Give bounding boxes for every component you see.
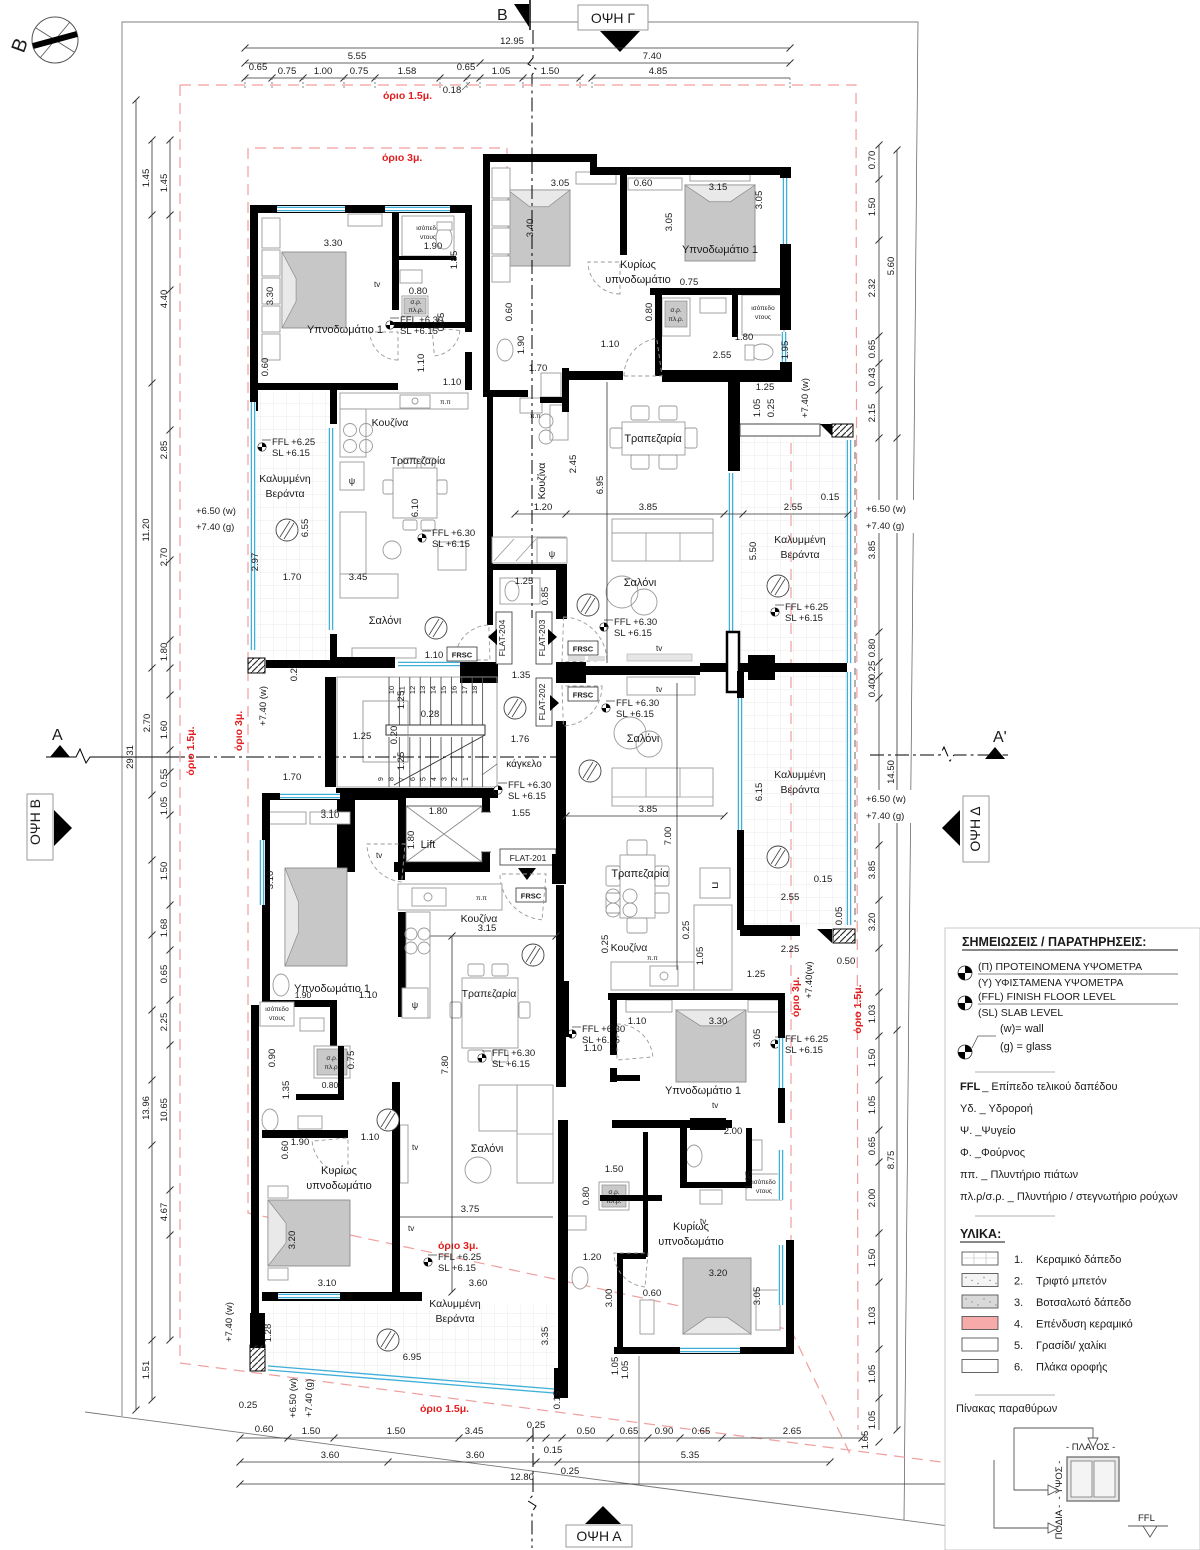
svg-text:Πλάκα οροφής: Πλάκα οροφής [1036,1362,1107,1374]
svg-text:1.50: 1.50 [867,1249,878,1268]
svg-text:5.55: 5.55 [348,51,367,62]
svg-text:13.96: 13.96 [141,1096,152,1120]
svg-text:1.68: 1.68 [159,919,170,938]
svg-text:12.95: 12.95 [500,36,524,47]
svg-text:1.28: 1.28 [263,1324,274,1343]
svg-text:ΟΨΗ Γ: ΟΨΗ Γ [591,10,636,26]
svg-text:15: 15 [439,686,448,694]
svg-text:7.40: 7.40 [643,51,662,62]
svg-text:0.80: 0.80 [581,1187,592,1206]
svg-text:1.25: 1.25 [353,731,372,742]
svg-text:Τραπεζαρία: Τραπεζαρία [462,988,517,1000]
svg-text:18: 18 [470,686,479,694]
svg-text:FFL _ Επίπεδο τελικού δαπέδου: FFL _ Επίπεδο τελικού δαπέδου [960,1081,1118,1093]
svg-text:FFL: FFL [1138,1513,1155,1524]
svg-text:3.45: 3.45 [349,572,368,583]
svg-text:Lift: Lift [421,839,436,851]
svg-text:5.35: 5.35 [681,1450,700,1461]
svg-text:1.50: 1.50 [387,1426,406,1437]
svg-text:4.40: 4.40 [159,290,170,309]
svg-text:1.10: 1.10 [584,1043,603,1054]
svg-text:0.60: 0.60 [260,358,271,377]
svg-text:FFL +6.25: FFL +6.25 [785,602,828,613]
svg-text:12.80: 12.80 [510,1472,534,1483]
svg-text:2.55: 2.55 [713,350,732,361]
svg-text:0.65: 0.65 [867,1137,878,1156]
svg-text:πλ.ρ.: πλ.ρ. [324,1064,339,1071]
svg-text:+6.50 (w): +6.50 (w) [288,1378,299,1418]
svg-text:ΠΟΔΙΑ -: ΠΟΔΙΑ - [1054,1505,1065,1540]
svg-text:0.25: 0.25 [766,399,777,418]
svg-text:ΣΗΜΕΙΩΣΕΙΣ / ΠΑΡΑΤΗΡΗΣΕΙΣ:: ΣΗΜΕΙΩΣΕΙΣ / ΠΑΡΑΤΗΡΗΣΕΙΣ: [962,935,1146,949]
svg-text:ντους: ντους [269,1015,285,1022]
svg-text:0.65: 0.65 [159,965,170,984]
svg-text:1.10: 1.10 [361,1132,380,1143]
svg-text:ισόπεδο: ισόπεδο [752,1178,776,1186]
svg-text:0.25: 0.25 [239,1400,258,1411]
svg-text:1.80: 1.80 [159,643,170,662]
svg-text:1.50: 1.50 [302,1426,321,1437]
svg-text:0.65: 0.65 [457,62,476,73]
svg-text:0.65: 0.65 [249,62,268,73]
svg-text:2.00: 2.00 [724,1126,743,1137]
svg-text:0.65: 0.65 [620,1426,639,1437]
svg-text:SL +6.15: SL +6.15 [432,539,470,550]
svg-text:6.95: 6.95 [595,476,606,495]
svg-text:1.80: 1.80 [429,806,448,817]
svg-text:5.50: 5.50 [748,542,759,561]
svg-text:2.45: 2.45 [568,455,579,474]
svg-text:14: 14 [429,686,438,694]
svg-text:ψ: ψ [549,549,555,559]
svg-text:17: 17 [460,686,469,694]
svg-text:0.25: 0.25 [600,935,611,954]
svg-text:(w)= wall: (w)= wall [1000,1023,1044,1035]
svg-text:1.00: 1.00 [314,66,333,77]
svg-text:1.10: 1.10 [601,339,620,350]
svg-text:0.70: 0.70 [867,151,878,170]
svg-text:πλ.ρ.: πλ.ρ. [668,316,683,323]
svg-text:1.90: 1.90 [295,990,312,1000]
svg-text:0.05: 0.05 [834,907,845,926]
svg-text:0.75: 0.75 [350,66,369,77]
svg-text:ντους: ντους [420,234,436,241]
svg-text:SL +6.15: SL +6.15 [785,1045,823,1056]
svg-text:12: 12 [408,686,417,694]
svg-text:tv: tv [376,851,382,860]
svg-text:2.55: 2.55 [781,892,800,903]
svg-text:Κυρίως: Κυρίως [321,1165,357,1177]
svg-text:1.05: 1.05 [695,947,706,966]
svg-text:0.75: 0.75 [278,66,297,77]
svg-text:5: 5 [420,777,427,781]
svg-text:1.20: 1.20 [583,1252,602,1263]
svg-text:1.60: 1.60 [159,721,170,740]
svg-text:1.35: 1.35 [512,670,531,681]
svg-text:όριο 1.5μ.: όριο 1.5μ. [383,90,432,102]
svg-text:Βεράντα: Βεράντα [780,784,819,796]
svg-text:1.05: 1.05 [492,66,511,77]
svg-text:Βεράντα: Βεράντα [435,1313,474,1325]
svg-text:1.70: 1.70 [283,772,302,783]
svg-text:2.15: 2.15 [867,404,878,423]
svg-text:0.90: 0.90 [655,1426,674,1437]
svg-text:4.: 4. [1014,1319,1023,1331]
svg-text:Κυρίως: Κυρίως [673,1221,709,1233]
svg-text:2.: 2. [1014,1276,1023,1288]
svg-text:3.20: 3.20 [867,913,878,932]
svg-text:(Π) ΠΡΟΤΕΙΝΟΜΕΝΑ ΥΨΟΜΕΤΡΑ: (Π) ΠΡΟΤΕΙΝΟΜΕΝΑ ΥΨΟΜΕΤΡΑ [978,961,1142,973]
svg-text:κάγκελο: κάγκελο [506,758,542,770]
svg-text:FFL +6.30: FFL +6.30 [432,528,475,539]
svg-text:2.32: 2.32 [867,279,878,298]
svg-text:SL +6.15: SL +6.15 [438,1263,476,1274]
svg-text:0.40: 0.40 [867,679,878,698]
svg-text:FLAT-203: FLAT-203 [537,619,547,656]
svg-text:3.00: 3.00 [604,1289,615,1308]
svg-text:πλ.ρ.: πλ.ρ. [408,307,423,314]
svg-text:3.15: 3.15 [478,923,497,934]
svg-text:ψ: ψ [412,1000,418,1010]
svg-text:7.00: 7.00 [663,827,674,846]
svg-text:ΟΨΗ Δ: ΟΨΗ Δ [967,806,983,851]
svg-text:0.60: 0.60 [255,1424,274,1435]
svg-text:0.18: 0.18 [443,85,462,96]
svg-text:6: 6 [410,777,417,781]
svg-text:0.28: 0.28 [421,709,440,720]
svg-text:0.20: 0.20 [389,726,400,745]
svg-text:1.20: 1.20 [534,502,553,513]
svg-text:1.45: 1.45 [159,174,170,193]
svg-text:6.95: 6.95 [403,1352,422,1363]
svg-text:16: 16 [449,686,458,694]
svg-text:FFL +6.30: FFL +6.30 [582,1024,625,1035]
svg-text:tv: tv [656,685,662,694]
svg-text:3.10: 3.10 [321,810,340,821]
svg-text:3.60: 3.60 [466,1450,485,1461]
svg-text:π.π: π.π [476,895,487,902]
svg-text:Κουζίνα: Κουζίνα [536,463,548,500]
svg-text:ντους: ντους [755,314,771,321]
svg-text:όριο 1.5μ.: όριο 1.5μ. [185,726,197,775]
svg-text:+7.40 (g): +7.40 (g) [866,521,904,532]
svg-text:σ.ρ.: σ.ρ. [410,299,422,306]
svg-text:1.50: 1.50 [541,66,560,77]
svg-text:3.30: 3.30 [709,1016,728,1027]
svg-text:3.40: 3.40 [525,219,536,238]
svg-text:0.60: 0.60 [634,178,653,189]
svg-text:0.60: 0.60 [643,1288,662,1299]
svg-text:SL +6.15: SL +6.15 [614,628,652,639]
svg-text:tv: tv [656,644,662,653]
svg-text:FFL +6.30: FFL +6.30 [616,698,659,709]
svg-text:3.05: 3.05 [551,178,570,189]
svg-text:Σαλόνι: Σαλόνι [369,615,402,627]
svg-text:(Υ) ΥΦΙΣΤΑΜΕΝΑ ΥΨΟΜΕΤΡΑ: (Υ) ΥΦΙΣΤΑΜΕΝΑ ΥΨΟΜΕΤΡΑ [978,977,1123,989]
svg-text:1.50: 1.50 [867,1049,878,1068]
svg-text:Κεραμικό δάπεδο: Κεραμικό δάπεδο [1036,1254,1121,1266]
svg-text:1.10: 1.10 [425,650,444,661]
svg-text:(SL) SLAB LEVEL: (SL) SLAB LEVEL [978,1007,1063,1019]
svg-text:Ψ. _Ψυγείο: Ψ. _Ψυγείο [960,1125,1016,1137]
svg-text:6.10: 6.10 [410,499,421,518]
svg-text:1.25: 1.25 [396,752,407,771]
svg-text:SL +6.15: SL +6.15 [272,448,310,459]
svg-text:3.60: 3.60 [469,1278,488,1289]
svg-text:3.85: 3.85 [639,502,658,513]
svg-text:Σαλόνι: Σαλόνι [471,1143,504,1155]
svg-text:3.85: 3.85 [639,804,658,815]
svg-text:σ.ρ.: σ.ρ. [608,1189,620,1196]
svg-text:0.75: 0.75 [346,1051,357,1070]
svg-text:ισόπεδο: ισόπεδο [751,304,775,312]
svg-text:0.80: 0.80 [322,1080,339,1090]
svg-text:0.50: 0.50 [837,956,856,967]
svg-text:5.: 5. [1014,1340,1023,1352]
svg-text:3.85: 3.85 [867,861,878,880]
svg-text:όριο 1.5μ.: όριο 1.5μ. [420,1403,469,1415]
svg-text:1.10: 1.10 [628,1016,647,1027]
svg-text:πλ.ρ/σ.ρ. _ Πλυντήριο / στεγνω: πλ.ρ/σ.ρ. _ Πλυντήριο / στεγνωτήριο ρούχ… [960,1191,1178,1203]
svg-text:1.: 1. [1014,1254,1023,1266]
svg-text:1.50: 1.50 [605,1164,624,1175]
svg-text:3.05: 3.05 [754,191,765,210]
svg-text:+7.40 (w): +7.40 (w) [800,378,811,418]
svg-text:ισόπεδο: ισόπεδο [265,1005,289,1013]
svg-text:1: 1 [463,777,470,781]
svg-text:2.65: 2.65 [783,1426,802,1437]
svg-text:FLAT-204: FLAT-204 [497,619,507,656]
svg-text:1.95: 1.95 [780,341,791,360]
svg-text:1.10: 1.10 [359,990,378,1001]
svg-text:+7.40 (g): +7.40 (g) [304,1379,315,1417]
svg-text:⊐: ⊐ [711,880,719,890]
svg-text:1.25: 1.25 [747,969,766,980]
svg-text:FFL: FFL [960,1081,980,1093]
svg-text:3.05: 3.05 [752,1029,763,1048]
svg-text:FFL +6.30: FFL +6.30 [508,780,551,791]
svg-text:1.80: 1.80 [406,831,417,850]
svg-text:3.30: 3.30 [265,287,276,306]
svg-text:4.67: 4.67 [159,1203,170,1222]
svg-text:Καλυμμένη: Καλυμμένη [774,534,826,546]
svg-text:SL +6.15: SL +6.15 [785,613,823,624]
svg-text:0.90: 0.90 [267,1049,278,1068]
svg-text:Τραπεζαρία: Τραπεζαρία [624,433,682,445]
svg-text:tv: tv [408,1224,414,1233]
svg-text:A': A' [993,729,1007,746]
svg-text:9: 9 [378,777,385,781]
svg-text:0.60: 0.60 [280,1141,291,1160]
svg-text:Υπνοδωμάτιο 1: Υπνοδωμάτιο 1 [665,1085,741,1097]
svg-text:Τραπεζαρία: Τραπεζαρία [391,455,446,467]
svg-text:FFL +6.25: FFL +6.25 [785,1034,828,1045]
svg-text:SL +6.15: SL +6.15 [508,791,546,802]
svg-text:Καλυμμένη: Καλυμμένη [774,769,826,781]
svg-text:3.05: 3.05 [664,213,675,232]
svg-text:1.90: 1.90 [516,336,527,355]
svg-text:2.25: 2.25 [781,944,800,955]
svg-text:σ.ρ.: σ.ρ. [326,1055,338,1062]
svg-text:1.76: 1.76 [511,734,530,745]
svg-text:tv: tv [374,280,380,289]
svg-text:όριο 1.5μ.: όριο 1.5μ. [852,984,864,1033]
svg-text:1.03: 1.03 [867,1005,878,1024]
svg-text:FRSC: FRSC [573,691,594,700]
svg-text:0.25: 0.25 [527,1420,546,1431]
svg-text:FFL +6.25: FFL +6.25 [438,1252,481,1263]
svg-text:3.20: 3.20 [709,1268,728,1279]
svg-text:Βεράντα: Βεράντα [780,549,819,561]
svg-text:2.00: 2.00 [867,1189,878,1208]
svg-text:υπνοδωμάτιο: υπνοδωμάτιο [605,274,671,286]
svg-text:Υδ. _ Υδροροή: Υδ. _ Υδροροή [960,1103,1033,1115]
svg-text:+6.50 (w): +6.50 (w) [866,504,906,515]
svg-text:3.: 3. [1014,1297,1023,1309]
svg-text:1.05: 1.05 [159,797,170,816]
svg-text:4: 4 [431,777,438,781]
svg-text:(g) = glass: (g) = glass [1000,1041,1052,1053]
svg-text:ΟΨΗ Α: ΟΨΗ Α [576,1528,622,1544]
svg-text:0.75: 0.75 [680,277,699,288]
svg-text:όριο 3μ.: όριο 3μ. [233,711,245,751]
svg-text:3.85: 3.85 [867,541,878,560]
svg-text:1.50: 1.50 [159,862,170,881]
svg-text:π.π: π.π [647,955,658,962]
svg-text:tv: tv [412,1143,418,1152]
svg-text:Πίνακας παραθύρων: Πίνακας παραθύρων [956,1403,1058,1415]
svg-text:0.43: 0.43 [867,368,878,387]
svg-text:3.10: 3.10 [318,1278,337,1289]
svg-text:3.35: 3.35 [540,1327,551,1346]
svg-text:1.80: 1.80 [735,332,754,343]
svg-text:2.25: 2.25 [159,1013,170,1032]
svg-text:ΟΨΗ Β: ΟΨΗ Β [27,799,43,845]
svg-text:+7.40 (g): +7.40 (g) [196,522,234,533]
svg-text:1.50: 1.50 [867,198,878,217]
svg-text:8.75: 8.75 [886,1151,897,1170]
svg-text:Υπνοδωμάτιο 1: Υπνοδωμάτιο 1 [682,244,758,256]
svg-text:(FFL) FINISH FLOOR LEVEL: (FFL) FINISH FLOOR LEVEL [978,991,1116,1003]
svg-text:3.20: 3.20 [287,1231,298,1250]
svg-text:+6.50 (w): +6.50 (w) [866,794,906,805]
svg-text:0.25: 0.25 [867,661,878,680]
svg-text:1.25: 1.25 [756,382,775,393]
svg-text:0.65: 0.65 [867,340,878,359]
svg-text:A: A [52,727,63,744]
svg-text:1.65: 1.65 [860,1431,871,1450]
svg-text:1.25: 1.25 [515,576,534,587]
svg-text:0.15: 0.15 [544,1445,563,1456]
svg-text:σ.ρ.: σ.ρ. [670,307,682,314]
svg-text:7.80: 7.80 [440,1056,451,1075]
svg-text:2.70: 2.70 [142,714,153,733]
svg-text:SL +6.15: SL +6.15 [492,1059,530,1070]
svg-text:1.05: 1.05 [867,1096,878,1115]
svg-text:Τραπεζαρία: Τραπεζαρία [611,868,669,880]
svg-text:+6.50 (w): +6.50 (w) [196,506,236,517]
svg-text:29.31: 29.31 [125,745,136,769]
svg-text:6.15: 6.15 [754,783,765,802]
svg-text:6.55: 6.55 [300,519,311,538]
svg-text:0.15: 0.15 [552,1391,563,1410]
svg-text:5.60: 5.60 [886,257,897,276]
svg-text:10.65: 10.65 [159,1098,170,1122]
svg-text:Γρασίδι/ χαλίκι: Γρασίδι/ χαλίκι [1036,1340,1107,1352]
svg-text:1.85: 1.85 [449,251,460,270]
svg-text:3.15: 3.15 [709,182,728,193]
svg-text:Κουζίνα: Κουζίνα [372,417,409,429]
svg-text:14.50: 14.50 [886,760,897,784]
svg-text:0.55: 0.55 [159,769,170,788]
svg-text:0.85: 0.85 [540,587,551,606]
svg-text:1.55: 1.55 [512,808,531,819]
svg-text:Βοτσαλωτό δάπεδο: Βοτσαλωτό δάπεδο [1036,1297,1131,1309]
svg-text:0.50: 0.50 [577,1426,596,1437]
svg-text:1.05: 1.05 [867,1411,878,1430]
svg-text:+7.40 (g): +7.40 (g) [866,811,904,822]
svg-text:Φ. _Φούρνος: Φ. _Φούρνος [960,1147,1025,1159]
svg-text:2.97: 2.97 [250,553,261,572]
svg-text:1.05: 1.05 [610,1357,621,1376]
svg-text:tv: tv [712,1101,718,1110]
svg-text:0.80: 0.80 [409,286,428,297]
svg-text:1.10: 1.10 [443,377,462,388]
svg-text:0.60: 0.60 [504,303,515,322]
svg-text:1.51: 1.51 [141,1361,152,1380]
svg-text:10: 10 [387,686,396,694]
svg-text:3: 3 [442,777,449,781]
svg-text:Καλυμμένη: Καλυμμένη [259,473,311,485]
svg-text:Τριφτό μπετόν: Τριφτό μπετόν [1036,1276,1107,1288]
svg-text:1.58: 1.58 [398,66,417,77]
svg-text:1.70: 1.70 [283,572,302,583]
svg-text:+7.40 (w): +7.40 (w) [258,686,269,726]
svg-text:SL +6.15: SL +6.15 [616,709,654,720]
svg-text:0.80: 0.80 [867,639,878,658]
svg-text:όριο 3μ.: όριο 3μ. [790,977,802,1017]
svg-text:3.10: 3.10 [265,871,276,890]
svg-text:π.π: π.π [440,399,451,406]
svg-text:ψ: ψ [349,476,355,486]
svg-text:2.55: 2.55 [784,502,803,513]
svg-text:0.80: 0.80 [644,303,655,322]
svg-text:SL +6.15: SL +6.15 [400,326,438,337]
svg-text:1.90: 1.90 [291,1137,310,1148]
svg-text:1.45: 1.45 [141,169,152,188]
svg-text:0.25: 0.25 [561,1466,580,1477]
svg-text:6.: 6. [1014,1362,1023,1374]
svg-text:υπνοδωμάτιο: υπνοδωμάτιο [306,1180,372,1192]
svg-text:0.75: 0.75 [436,313,447,332]
svg-text:FRSC: FRSC [452,651,473,660]
svg-text:Υπνοδωμάτιο 1: Υπνοδωμάτιο 1 [307,324,383,336]
svg-text:4.85: 4.85 [649,66,668,77]
svg-text:FFL +6.30: FFL +6.30 [614,617,657,628]
svg-text:όριο 3μ.: όριο 3μ. [382,152,422,164]
svg-text:3.30: 3.30 [324,238,343,249]
svg-text:Σαλόνι: Σαλόνι [624,577,657,589]
svg-text:όριο 3μ.: όριο 3μ. [438,1240,478,1252]
svg-text:Καλυμμένη: Καλυμμένη [429,1298,481,1310]
svg-text:Κουζίνα: Κουζίνα [611,942,648,954]
svg-text:FFL +6.30: FFL +6.30 [492,1048,535,1059]
svg-text:1.05: 1.05 [620,1361,631,1380]
svg-text:υπνοδωμάτιο: υπνοδωμάτιο [658,1236,724,1248]
svg-text:FFL +6.25: FFL +6.25 [272,437,315,448]
svg-text:1.10: 1.10 [416,354,427,373]
svg-text:1.95: 1.95 [744,1171,755,1190]
